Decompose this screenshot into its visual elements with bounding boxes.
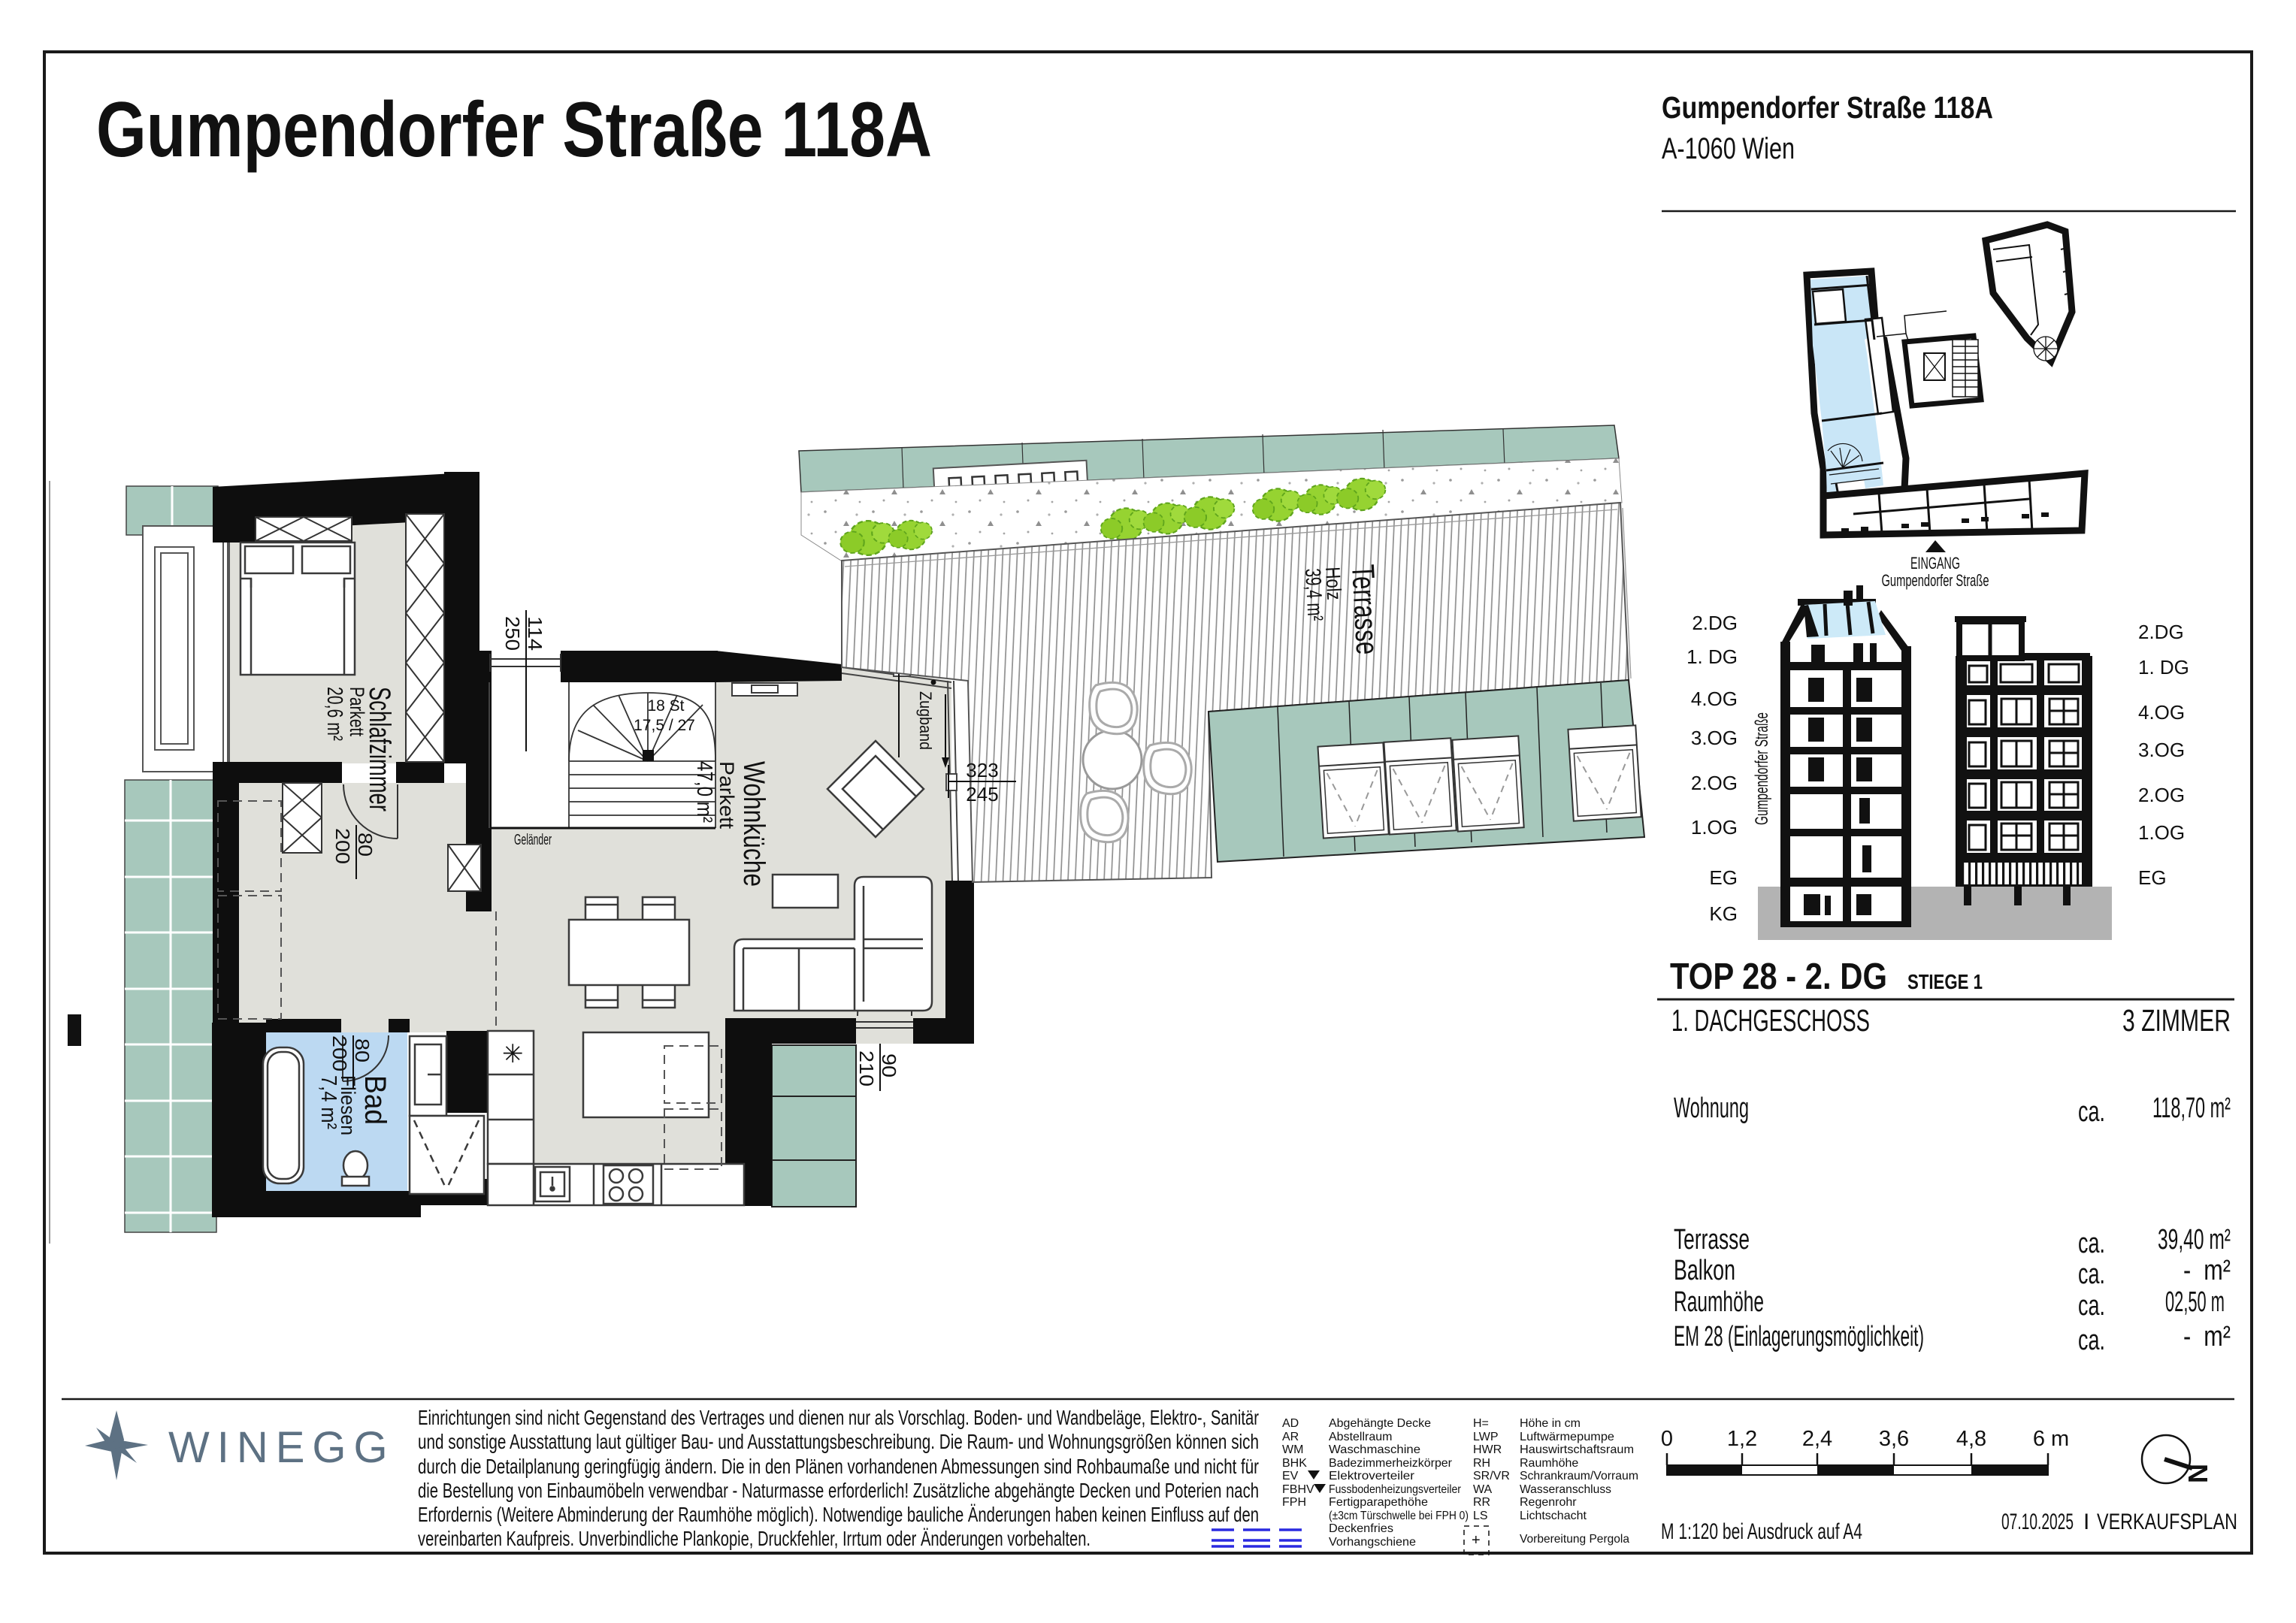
- svg-text:210: 210: [855, 1050, 878, 1087]
- svg-text:3 ZIMMER: 3 ZIMMER: [2122, 1003, 2231, 1038]
- svg-text:(±3cm Türschwelle bei FPH 0): (±3cm Türschwelle bei FPH 0): [1329, 1510, 1469, 1522]
- svg-text:2.DG: 2.DG: [2138, 621, 2184, 643]
- svg-text:1.OG: 1.OG: [1691, 816, 1738, 839]
- svg-text:Regenrohr: Regenrohr: [1520, 1496, 1577, 1509]
- svg-text:90: 90: [878, 1053, 900, 1077]
- svg-text:2,4: 2,4: [1802, 1427, 1832, 1451]
- svg-text:Hauswirtschaftsraum: Hauswirtschaftsraum: [1520, 1443, 1634, 1456]
- svg-text:Vorhangschiene: Vorhangschiene: [1329, 1536, 1416, 1549]
- svg-text:+: +: [1472, 1532, 1481, 1549]
- svg-text:7,4 m²: 7,4 m²: [316, 1075, 340, 1129]
- svg-text:BHK: BHK: [1282, 1457, 1307, 1470]
- svg-text:20,6 m²: 20,6 m²: [322, 687, 346, 741]
- svg-text:114: 114: [524, 616, 546, 651]
- svg-text:AR: AR: [1282, 1431, 1299, 1443]
- svg-text:Badezimmerheizkörper: Badezimmerheizkörper: [1329, 1457, 1453, 1470]
- svg-text:Höhe in cm: Höhe in cm: [1520, 1417, 1581, 1430]
- svg-text:EINGANG: EINGANG: [1910, 554, 1960, 573]
- svg-text:ca.: ca.: [2078, 1290, 2105, 1322]
- svg-text:Parkett: Parkett: [715, 761, 738, 830]
- svg-text:17,5 / 27: 17,5 / 27: [634, 717, 695, 734]
- svg-text:die Bestellung von Einbaumöbel: die Bestellung von Einbaumöbeln verwendb…: [418, 1479, 1259, 1502]
- svg-text:- m²: - m²: [2183, 1255, 2231, 1286]
- svg-text:Erfordernis (Weitere Abminderu: Erfordernis (Weitere Abminderung der Rau…: [418, 1503, 1259, 1526]
- svg-text:118,70 m²: 118,70 m²: [2152, 1093, 2231, 1124]
- svg-text:RH: RH: [1473, 1457, 1490, 1470]
- svg-text:Wohnung: Wohnung: [1674, 1093, 1749, 1124]
- svg-text:- m²: - m²: [2183, 1321, 2231, 1352]
- svg-text:Vorbereitung Pergola: Vorbereitung Pergola: [1520, 1533, 1629, 1546]
- svg-text:Zugband: Zugband: [916, 691, 935, 750]
- svg-text:N: N: [2183, 1464, 2213, 1483]
- svg-text:1. DG: 1. DG: [1686, 645, 1738, 668]
- svg-text:WA: WA: [1473, 1483, 1493, 1496]
- svg-text:H=: H=: [1473, 1417, 1489, 1430]
- svg-text:✳: ✳: [502, 1040, 524, 1068]
- svg-text:Raumhöhe: Raumhöhe: [1520, 1457, 1578, 1470]
- svg-text:und sonstige Ausstattung laut: und sonstige Ausstattung laut gültiger B…: [418, 1430, 1259, 1453]
- svg-text:AD: AD: [1282, 1417, 1299, 1430]
- svg-text:250: 250: [501, 616, 524, 651]
- svg-text:3.OG: 3.OG: [2138, 739, 2185, 761]
- svg-text:3,6: 3,6: [1879, 1427, 1909, 1451]
- svg-text:I: I: [2083, 1510, 2089, 1534]
- svg-text:1. DACHGESCHOSS: 1. DACHGESCHOSS: [1671, 1003, 1870, 1038]
- svg-text:durch die Detailplanung gering: durch die Detailplanung geringfügig ände…: [418, 1455, 1259, 1478]
- svg-text:Einrichtungen sind nicht Gegen: Einrichtungen sind nicht Gegenstand des …: [418, 1406, 1259, 1429]
- svg-text:Bad: Bad: [358, 1075, 392, 1125]
- svg-text:Elektroverteiler: Elektroverteiler: [1329, 1470, 1415, 1482]
- svg-text:FPH: FPH: [1282, 1496, 1306, 1509]
- svg-text:SR/VR: SR/VR: [1473, 1470, 1510, 1482]
- svg-text:RR: RR: [1473, 1496, 1490, 1509]
- svg-text:2.OG: 2.OG: [1691, 772, 1738, 794]
- svg-text:vereinbarten Kaufpreis. Unverb: vereinbarten Kaufpreis. Unverbindliche P…: [418, 1527, 1091, 1550]
- svg-text:02,50 m: 02,50 m: [2165, 1286, 2225, 1318]
- svg-text:18 St: 18 St: [647, 697, 684, 715]
- svg-text:39,40 m²: 39,40 m²: [2158, 1224, 2231, 1256]
- svg-text:4.OG: 4.OG: [2138, 701, 2185, 724]
- svg-text:80: 80: [351, 1038, 374, 1062]
- svg-text:TOP 28 - 2. DG: TOP 28 - 2. DG: [1670, 957, 1887, 997]
- svg-text:200: 200: [331, 828, 354, 864]
- svg-text:Geländer: Geländer: [514, 832, 552, 848]
- svg-text:245: 245: [966, 783, 998, 805]
- svg-text:LWP: LWP: [1473, 1431, 1498, 1443]
- svg-text:EG: EG: [2138, 866, 2167, 889]
- svg-text:Terrasse: Terrasse: [1345, 564, 1385, 655]
- svg-text:ca.: ca.: [2078, 1325, 2105, 1356]
- svg-text:1. DG: 1. DG: [2138, 656, 2189, 679]
- svg-text:Gumpendorfer Straße: Gumpendorfer Straße: [1752, 712, 1772, 825]
- svg-text:Lichtschacht: Lichtschacht: [1520, 1510, 1587, 1522]
- svg-text:LS: LS: [1473, 1510, 1488, 1522]
- svg-text:Luftwärmepumpe: Luftwärmepumpe: [1520, 1431, 1614, 1443]
- svg-text:Parkett: Parkett: [346, 687, 368, 736]
- svg-text:EG: EG: [1709, 866, 1738, 889]
- svg-text:Abstellraum: Abstellraum: [1329, 1431, 1392, 1443]
- svg-text:200: 200: [328, 1035, 351, 1071]
- svg-text:Wasseranschluss: Wasseranschluss: [1520, 1483, 1611, 1496]
- svg-text:Deckenfries: Deckenfries: [1329, 1522, 1393, 1535]
- svg-text:07.10.2025: 07.10.2025: [2001, 1510, 2074, 1534]
- svg-text:EV: EV: [1282, 1470, 1299, 1482]
- svg-text:Balkon: Balkon: [1674, 1255, 1735, 1286]
- svg-text:WINEGG: WINEGG: [168, 1423, 395, 1472]
- svg-text:ca.: ca.: [2078, 1259, 2105, 1290]
- svg-text:Raumhöhe: Raumhöhe: [1674, 1286, 1764, 1318]
- svg-text:STIEGE 1: STIEGE 1: [1907, 970, 1983, 993]
- svg-text:FBHV: FBHV: [1282, 1483, 1314, 1496]
- svg-text:Gumpendorfer Straße 118A: Gumpendorfer Straße 118A: [96, 86, 932, 174]
- svg-text:A-1060 Wien: A-1060 Wien: [1662, 132, 1795, 165]
- svg-text:HWR: HWR: [1473, 1443, 1502, 1456]
- svg-text:ca.: ca.: [2078, 1096, 2105, 1128]
- svg-text:47,0 m²: 47,0 m²: [692, 761, 716, 823]
- svg-text:M 1:120 bei Ausdruck auf A4: M 1:120 bei Ausdruck auf A4: [1661, 1519, 1862, 1544]
- svg-text:2.OG: 2.OG: [2138, 784, 2185, 806]
- svg-text:6 m: 6 m: [2033, 1427, 2069, 1451]
- svg-text:Wohnküche: Wohnküche: [737, 761, 770, 887]
- svg-text:Gumpendorfer Straße: Gumpendorfer Straße: [1882, 571, 1989, 590]
- svg-text:EM 28 (Einlagerungsmöglichkeit: EM 28 (Einlagerungsmöglichkeit): [1674, 1321, 1924, 1352]
- svg-text:0: 0: [1661, 1427, 1673, 1451]
- svg-text:Fertigparapethöhe: Fertigparapethöhe: [1329, 1496, 1428, 1509]
- svg-text:2.DG: 2.DG: [1692, 612, 1738, 634]
- svg-text:WM: WM: [1282, 1443, 1303, 1456]
- svg-text:1.OG: 1.OG: [2138, 821, 2185, 844]
- svg-text:Abgehängte Decke: Abgehängte Decke: [1329, 1417, 1431, 1430]
- svg-text:Schrankraum/Vorraum: Schrankraum/Vorraum: [1520, 1470, 1638, 1482]
- svg-text:Gumpendorfer Straße 118A: Gumpendorfer Straße 118A: [1662, 90, 1993, 125]
- svg-text:3.OG: 3.OG: [1691, 727, 1738, 749]
- svg-text:Terrasse: Terrasse: [1674, 1224, 1750, 1256]
- svg-text:39,4 m²: 39,4 m²: [1300, 568, 1327, 622]
- svg-text:Waschmaschine: Waschmaschine: [1329, 1443, 1420, 1456]
- svg-text:323: 323: [966, 759, 998, 781]
- svg-text:ca.: ca.: [2078, 1228, 2105, 1259]
- svg-text:80: 80: [354, 833, 377, 857]
- svg-text:KG: KG: [1709, 902, 1738, 925]
- svg-text:Fussbodenheizungsverteiler: Fussbodenheizungsverteiler: [1329, 1483, 1462, 1496]
- svg-text:4,8: 4,8: [1956, 1427, 1986, 1451]
- svg-text:4.OG: 4.OG: [1691, 688, 1738, 710]
- svg-text:1,2: 1,2: [1727, 1427, 1757, 1451]
- svg-text:VERKAUFSPLAN: VERKAUFSPLAN: [2097, 1510, 2237, 1534]
